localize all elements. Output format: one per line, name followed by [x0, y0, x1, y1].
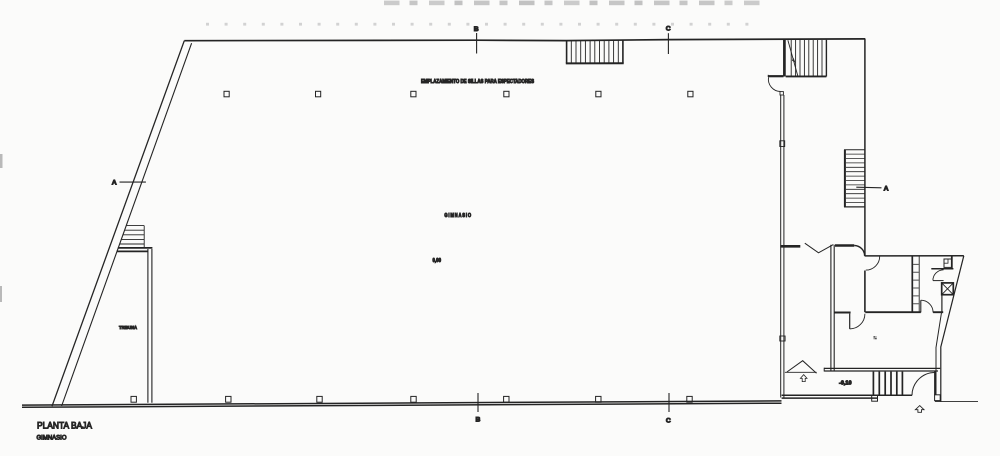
- svg-text:A: A: [112, 180, 117, 187]
- svg-text:PLANTA BAJA: PLANTA BAJA: [37, 420, 92, 430]
- svg-text:B: B: [474, 26, 479, 33]
- svg-text:EMPLAZAMIENTO DE SILLAS PARA E: EMPLAZAMIENTO DE SILLAS PARA ESPECTADORE…: [421, 79, 534, 85]
- svg-text:GIMNASIO: GIMNASIO: [37, 435, 67, 441]
- svg-text:B: B: [476, 417, 481, 424]
- svg-text:A: A: [884, 186, 889, 193]
- svg-text:-0,10: -0,10: [839, 380, 852, 386]
- svg-text:GIMNASIO: GIMNASIO: [444, 213, 472, 219]
- svg-text:C: C: [666, 26, 671, 33]
- svg-text:C: C: [666, 417, 671, 424]
- svg-text:0,00: 0,00: [433, 258, 442, 264]
- svg-text:TRIBUNA: TRIBUNA: [119, 325, 138, 330]
